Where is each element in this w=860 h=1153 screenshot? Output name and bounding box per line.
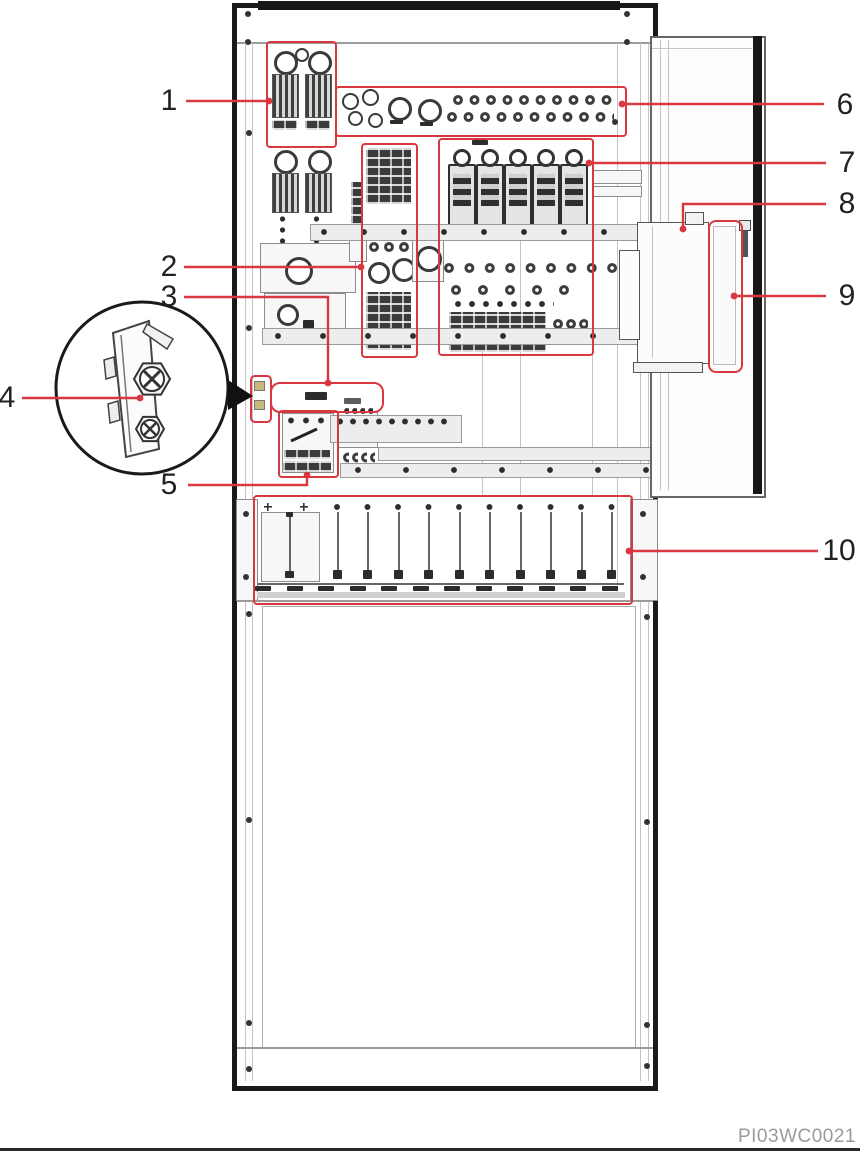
bracket-edge <box>121 335 131 452</box>
controller-line <box>652 226 653 358</box>
screw <box>246 1020 252 1026</box>
rail-bolts <box>352 466 650 474</box>
screw <box>246 1066 252 1072</box>
detail-circle <box>56 302 228 474</box>
cable-hole <box>277 304 299 326</box>
cable-hole <box>285 257 313 285</box>
callout-box-9 <box>708 220 743 373</box>
controller-box-side <box>619 250 640 340</box>
terminal-lug <box>308 150 332 174</box>
screw <box>644 1022 650 1028</box>
spd-ring-row <box>340 452 375 463</box>
callout-box-4 <box>250 375 272 423</box>
callout-number-5: 5 <box>152 470 186 500</box>
screw <box>624 11 630 17</box>
screw-head <box>141 420 159 438</box>
lower-door-bottom <box>237 1047 653 1049</box>
callout-box-5 <box>278 410 339 478</box>
screw <box>246 325 252 331</box>
callout-number-10: 10 <box>822 536 856 566</box>
screw <box>243 574 249 580</box>
callout-box-7 <box>438 138 594 356</box>
screw <box>640 511 646 517</box>
fuse-body <box>272 173 299 213</box>
controller-foot <box>633 362 703 373</box>
bracket-tab <box>108 401 120 423</box>
callout-box-1 <box>266 41 337 148</box>
small-bracket <box>592 170 642 184</box>
door-line <box>652 48 752 49</box>
screw <box>644 614 650 620</box>
cabinet-top-bar <box>258 1 620 10</box>
phillips-slot <box>144 423 156 435</box>
callout-number-6: 6 <box>828 90 860 120</box>
callout-number-8: 8 <box>830 189 860 219</box>
screw <box>624 39 630 45</box>
terminal-dots <box>334 418 454 425</box>
hex-screw <box>134 363 170 394</box>
figure-code: PI03WC0021 <box>738 1126 856 1148</box>
screw <box>644 819 650 825</box>
callout-number-3: 3 <box>152 282 186 312</box>
phillips-slot <box>145 372 159 386</box>
callout-box-3 <box>270 382 384 413</box>
screw <box>246 130 252 136</box>
door-edge <box>753 36 762 494</box>
bracket-plate <box>113 321 159 457</box>
leader-dot <box>137 395 144 402</box>
figure-canvas: 1 2 3 4 5 6 7 8 9 10 PI03WC0021 <box>0 0 860 1153</box>
screw <box>245 11 251 17</box>
callout-number-9: 9 <box>830 281 860 311</box>
screw <box>246 611 252 617</box>
callout-box-10 <box>253 495 633 605</box>
controller-box <box>637 222 709 364</box>
screw <box>644 1063 650 1069</box>
callout-number-2: 2 <box>152 252 186 282</box>
callout-box-6 <box>335 86 627 137</box>
screw-head <box>140 367 164 391</box>
bracket-arm <box>143 324 173 349</box>
callout-box-2 <box>361 143 418 358</box>
small-bracket <box>592 186 642 197</box>
bracket-tab <box>104 357 116 379</box>
lower-door-panel <box>262 606 636 1048</box>
lower-rail <box>378 447 657 461</box>
fuse-body <box>305 173 332 213</box>
callout-number-4: 4 <box>0 383 24 413</box>
controller-tab <box>685 212 704 225</box>
screw <box>640 574 646 580</box>
callout-number-1: 1 <box>152 86 186 116</box>
phillips-slot <box>144 423 156 435</box>
callout-number-7: 7 <box>830 148 860 178</box>
phillips-slot <box>145 372 159 386</box>
screw <box>243 511 249 517</box>
bottom-rule <box>0 1148 860 1151</box>
screw <box>246 817 252 823</box>
hex-screw <box>136 417 164 441</box>
terminal-lug <box>274 150 298 174</box>
